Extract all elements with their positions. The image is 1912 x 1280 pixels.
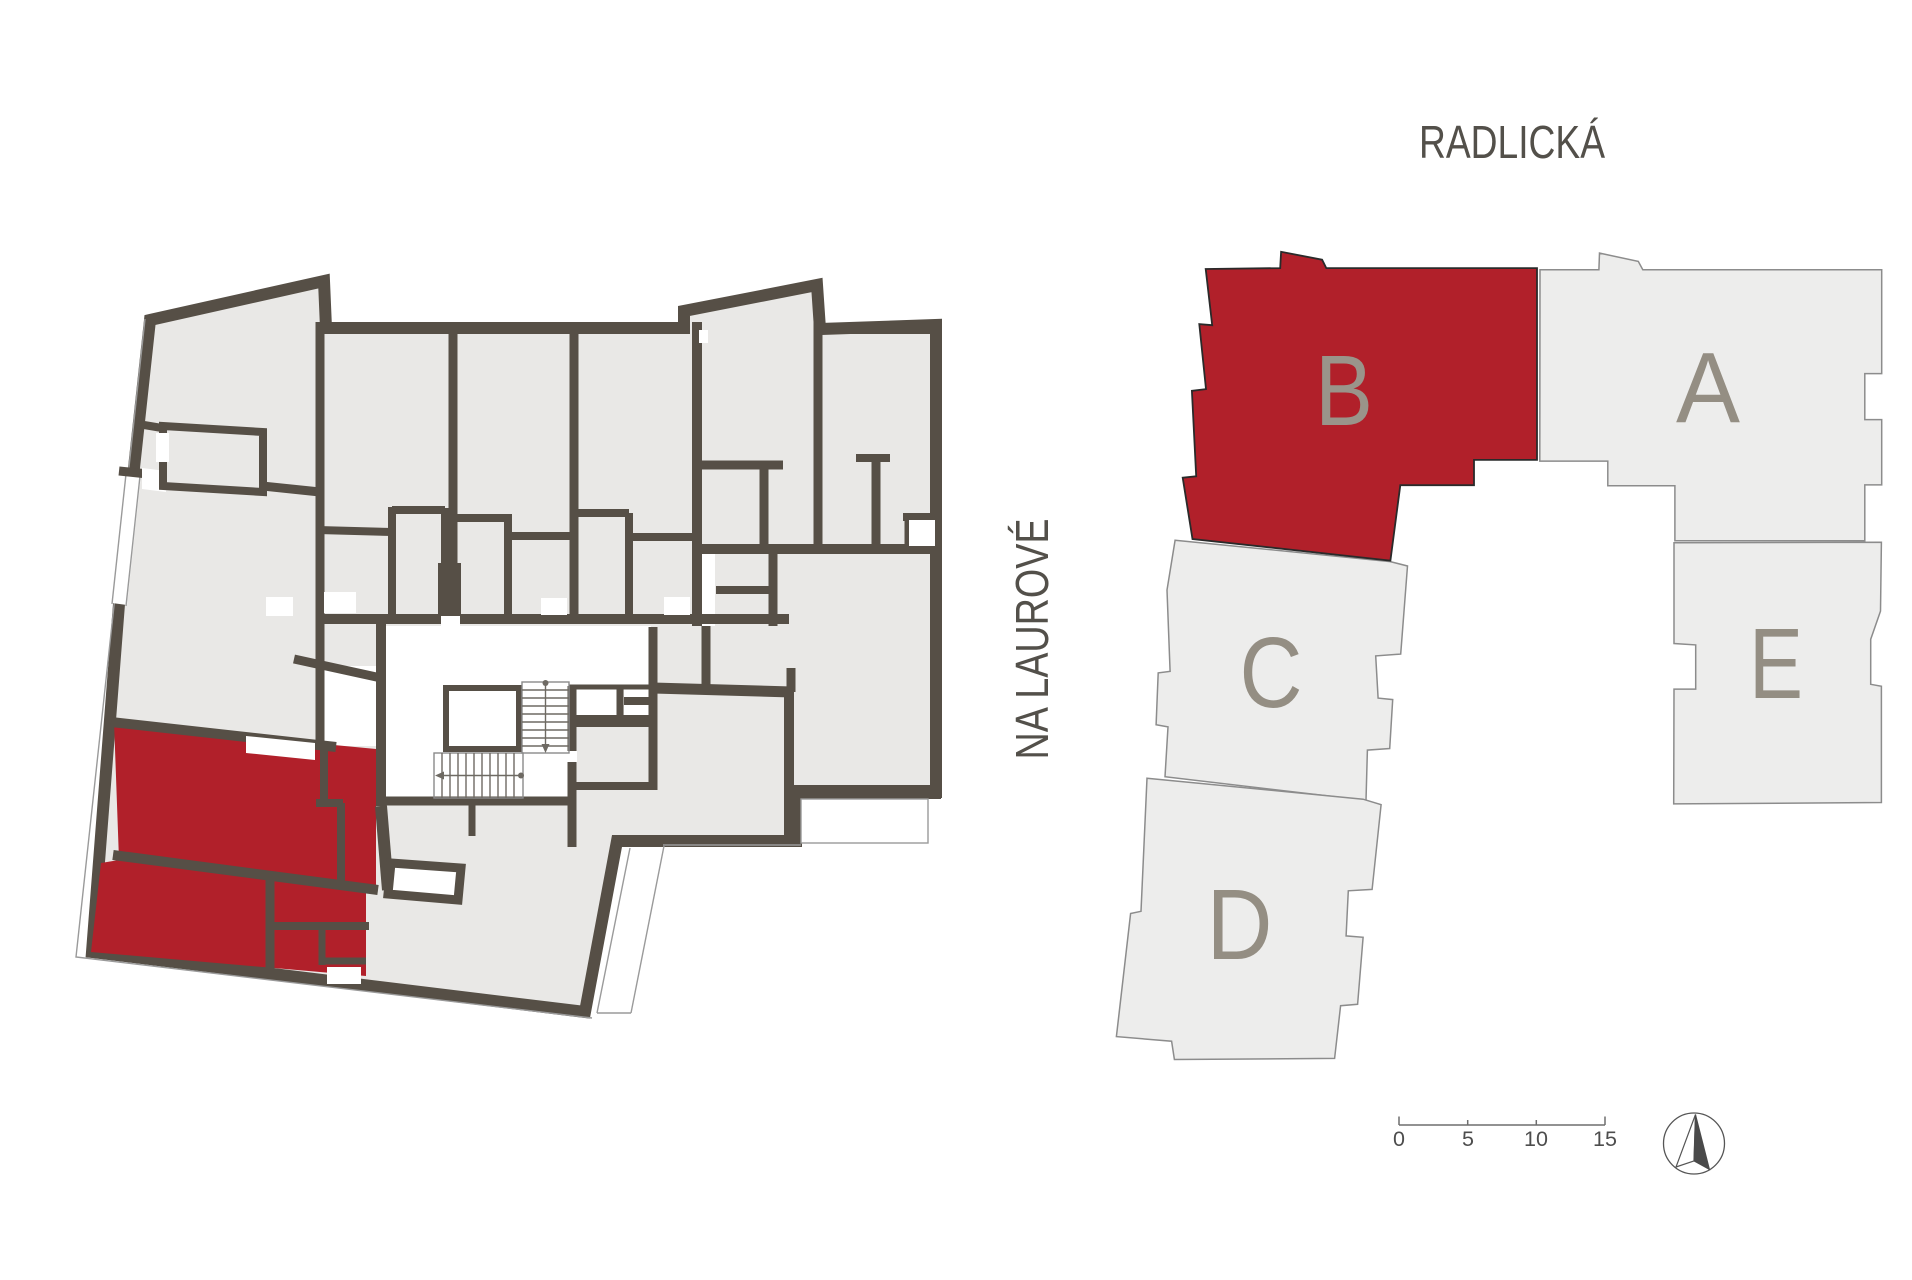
svg-text:A: A [1676, 332, 1740, 444]
svg-text:E: E [1749, 608, 1803, 720]
svg-text:RADLICKÁ: RADLICKÁ [1419, 116, 1605, 168]
svg-text:B: B [1315, 335, 1373, 447]
svg-text:10: 10 [1524, 1127, 1548, 1151]
svg-text:NA LAUROVÉ: NA LAUROVÉ [1006, 519, 1058, 760]
svg-text:D: D [1207, 869, 1273, 981]
svg-text:0: 0 [1393, 1127, 1405, 1151]
svg-text:C: C [1240, 617, 1303, 729]
svg-text:5: 5 [1462, 1127, 1474, 1151]
svg-text:15: 15 [1593, 1127, 1617, 1151]
